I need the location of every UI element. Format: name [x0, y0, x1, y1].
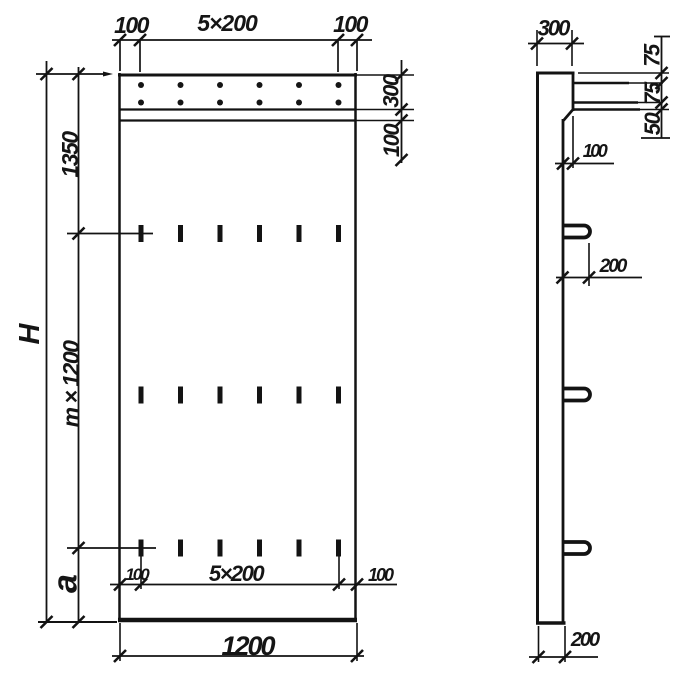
svg-text:75: 75: [640, 81, 665, 105]
svg-text:H: H: [14, 322, 46, 344]
svg-text:5×200: 5×200: [209, 561, 266, 586]
svg-text:100: 100: [583, 141, 608, 161]
svg-text:75: 75: [640, 43, 665, 67]
svg-text:100: 100: [368, 565, 394, 585]
svg-text:5×200: 5×200: [197, 10, 258, 36]
svg-text:300: 300: [538, 16, 571, 41]
svg-text:100: 100: [333, 11, 369, 37]
svg-text:300: 300: [379, 73, 404, 107]
svg-text:100: 100: [125, 565, 150, 584]
svg-text:1200: 1200: [221, 631, 275, 661]
svg-text:100: 100: [114, 12, 150, 38]
svg-text:m × 1200: m × 1200: [58, 340, 84, 428]
svg-text:200: 200: [570, 629, 600, 651]
svg-text:a: a: [47, 574, 85, 593]
svg-text:200: 200: [599, 256, 628, 277]
svg-text:1350: 1350: [57, 131, 83, 178]
svg-text:100: 100: [379, 123, 404, 157]
svg-text:50: 50: [640, 112, 665, 136]
